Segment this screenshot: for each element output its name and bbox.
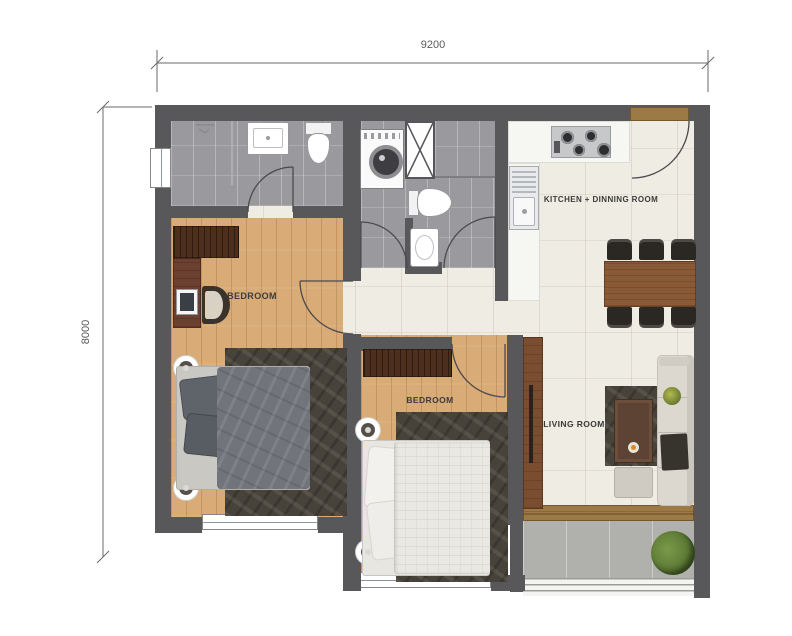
bathroom-divider-wall xyxy=(343,121,361,281)
outer-wall-top xyxy=(155,105,710,121)
washing-machine-drum xyxy=(369,145,403,179)
nightstand-lamp xyxy=(356,418,380,442)
stove-burner xyxy=(573,144,585,156)
bathroom1-window xyxy=(150,148,171,188)
dining-chair xyxy=(607,239,632,260)
washbasin2-bowl xyxy=(415,235,434,260)
stove-cooktop xyxy=(551,126,611,158)
stove-burner xyxy=(597,143,611,157)
dining-chair xyxy=(639,307,664,328)
coffee-table xyxy=(614,399,653,463)
wardrobe-bedroom2 xyxy=(363,349,452,377)
stove-controls xyxy=(554,141,560,153)
width-dimension-line xyxy=(151,50,714,92)
living-room-label: LIVING ROOM xyxy=(524,419,624,429)
monitor-screen xyxy=(180,293,194,311)
kitchen-dining-label: KITCHEN + DINNING ROOM xyxy=(526,195,676,204)
wardrobe-bedroom1 xyxy=(173,226,239,258)
balcony-sliding-door xyxy=(523,505,694,521)
sink-drain xyxy=(522,209,527,214)
stove-burner xyxy=(561,131,574,144)
stove-burner xyxy=(585,130,597,142)
desk-monitor xyxy=(176,289,198,315)
entrance-door-panel xyxy=(630,107,689,121)
outer-wall-left-lower xyxy=(155,188,171,533)
balcony-plant xyxy=(651,531,695,575)
washbasin1-drain xyxy=(266,136,270,140)
bathroom1-bottom-wall-right xyxy=(293,206,343,218)
service-shaft xyxy=(405,121,435,179)
kitchen-left-wall xyxy=(495,121,508,301)
candle-flame xyxy=(631,445,636,450)
sofa-backrest xyxy=(687,355,694,506)
sofa-throw-blanket xyxy=(660,433,689,470)
sofa-plant xyxy=(663,387,681,405)
dining-chair xyxy=(639,239,664,260)
tv-wall xyxy=(507,335,523,525)
width-dimension-label: 9200 xyxy=(403,39,463,51)
sofa xyxy=(657,355,694,506)
bedroom2-label: BEDROOM xyxy=(380,395,480,405)
bed2-duvet xyxy=(394,442,490,574)
dining-chair xyxy=(607,307,632,328)
bathroom1-bottom-wall-left xyxy=(171,206,248,218)
bed1-duvet xyxy=(217,367,310,489)
height-dimension-line xyxy=(97,101,152,563)
washing-machine-drum-center xyxy=(379,155,385,161)
floor-plan-canvas: BEDROOM BEDROOM KITCHEN + DINNING ROOM L… xyxy=(0,0,792,636)
bathroom2-floor-upper xyxy=(435,121,495,177)
bathroom2-glass-partition xyxy=(435,176,495,178)
washbasin-bathroom2 xyxy=(410,228,439,267)
dining-table xyxy=(604,261,696,307)
outer-wall-left-upper xyxy=(155,105,171,148)
sofa-armrest xyxy=(659,357,690,366)
sink-drainboard xyxy=(512,169,536,193)
ottoman xyxy=(614,467,653,498)
outer-wall-right xyxy=(694,105,710,598)
dining-chair xyxy=(671,307,696,328)
washbasin-bathroom1 xyxy=(247,122,289,155)
washing-machine xyxy=(360,129,404,189)
height-dimension-label: 8000 xyxy=(80,302,92,362)
bedroom1-label: BEDROOM xyxy=(200,291,304,301)
dining-chair xyxy=(671,239,696,260)
balcony-railing xyxy=(523,578,694,596)
washing-machine-panel xyxy=(364,133,400,139)
bedroom1-window xyxy=(202,514,318,530)
balcony-left-wall xyxy=(510,520,523,592)
bedroom1-bottom-wall-left xyxy=(155,517,202,533)
